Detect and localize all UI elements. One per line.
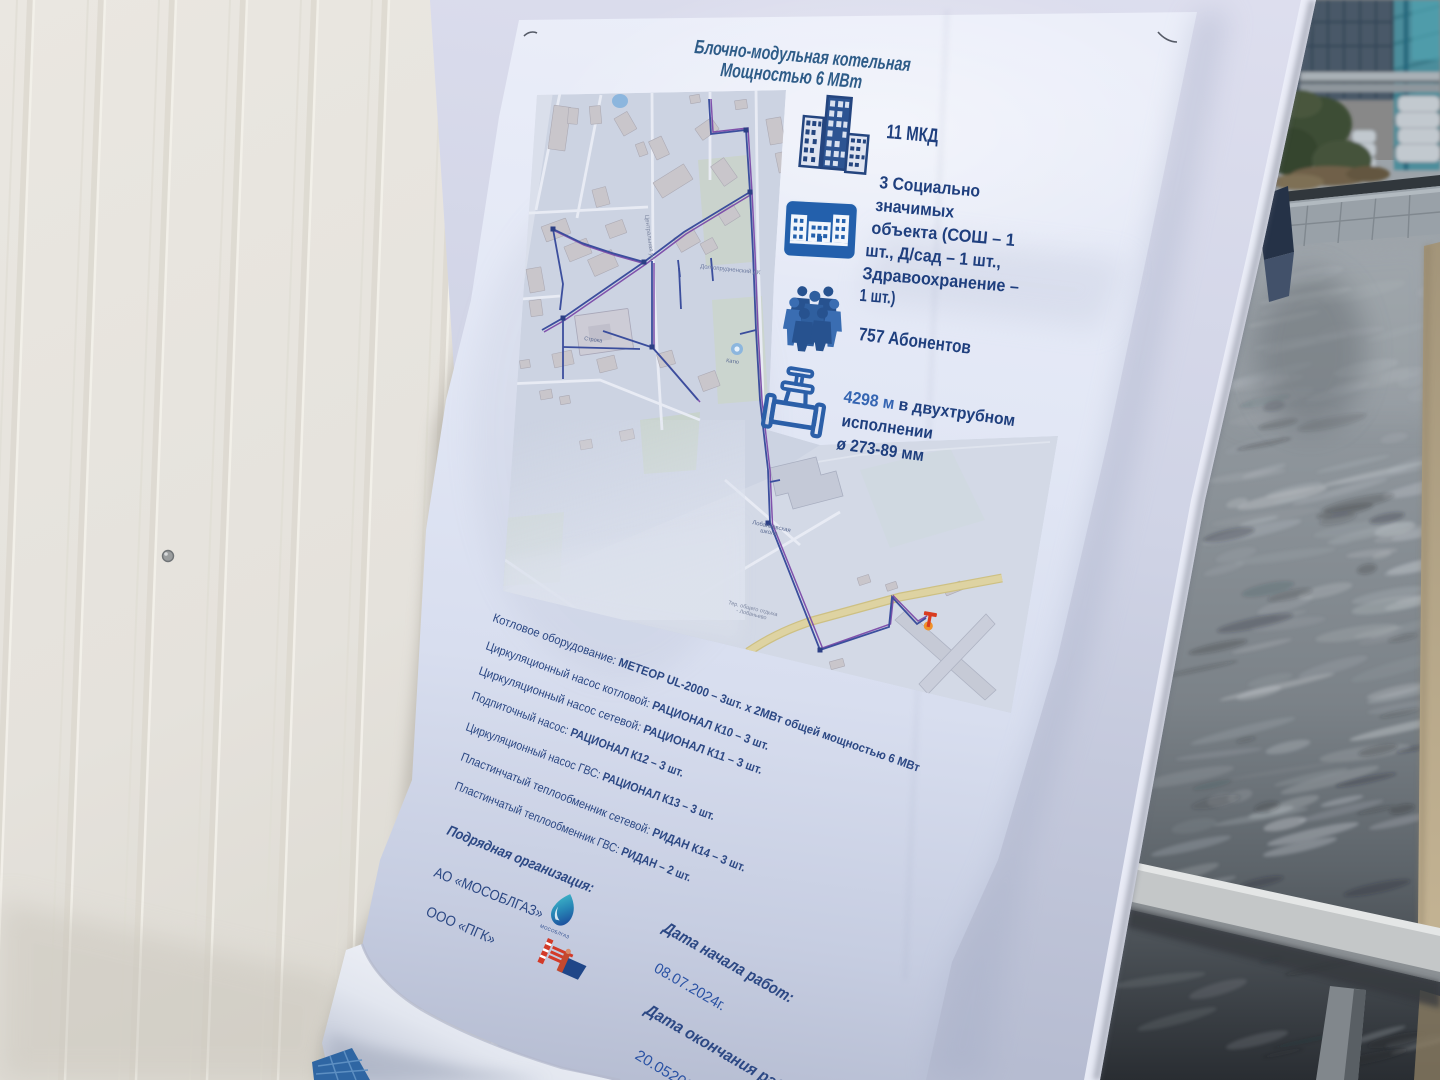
- svg-text:1 шт.): 1 шт.): [859, 285, 897, 308]
- svg-text:11 МКД: 11 МКД: [886, 121, 940, 147]
